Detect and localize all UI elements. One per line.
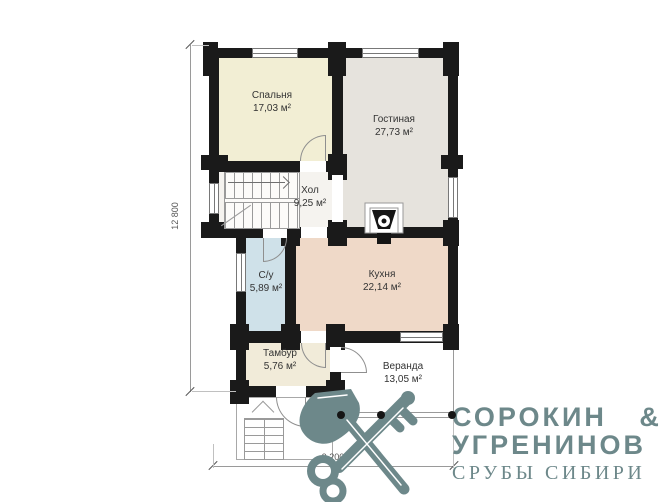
- room-area: 9,25 м²: [280, 198, 340, 211]
- dimension-extension: [213, 444, 214, 468]
- room-area: 17,03 м²: [222, 103, 322, 116]
- window-kitchen-bottom: [400, 332, 443, 342]
- floor-plan-page: 12 800 9 200 Спальня 17,03 м² Гостиная 2…: [0, 0, 667, 502]
- room-name: Тамбур: [230, 348, 330, 361]
- label-vestibule: Тамбур 5,76 м²: [230, 348, 330, 373]
- window-living-right: [448, 177, 458, 218]
- room-area: 5,76 м²: [230, 361, 330, 374]
- opening-kitchen-vestibule: [301, 331, 326, 343]
- veranda-post: [377, 411, 385, 419]
- log-end: [441, 155, 463, 169]
- label-veranda: Веранда 13,05 м²: [353, 361, 453, 386]
- logo-line-2: УГРЕНИНОВ: [452, 432, 651, 459]
- window-hall-left: [209, 183, 219, 214]
- window-bedroom-top: [252, 48, 298, 58]
- opening-vestibule-veranda: [330, 347, 341, 372]
- room-name: Кухня: [332, 269, 432, 282]
- log-end: [443, 42, 459, 76]
- opening-bedroom-door: [300, 161, 326, 172]
- dimension-line-left: [190, 45, 191, 392]
- log-end: [203, 42, 218, 76]
- veranda-post: [448, 411, 456, 419]
- log-end: [328, 42, 346, 76]
- stove-icon: [364, 202, 404, 246]
- log-end: [230, 380, 249, 404]
- room-area: 13,05 м²: [353, 374, 453, 387]
- log-end: [443, 220, 459, 246]
- room-name: Спальня: [222, 90, 322, 103]
- label-bathroom: С/у 5,89 м²: [236, 270, 296, 295]
- log-end: [443, 324, 459, 350]
- label-bedroom: Спальня 17,03 м²: [222, 90, 322, 115]
- opening-hall-kitchen: [301, 227, 327, 238]
- room-area: 22,14 м²: [332, 282, 432, 295]
- staircase-break-line: [221, 205, 251, 226]
- log-end: [201, 155, 228, 170]
- log-end: [230, 324, 249, 350]
- dimension-extension: [192, 391, 236, 392]
- label-hall: Хол 9,25 м²: [280, 185, 340, 210]
- label-kitchen: Кухня 22,14 м²: [332, 269, 432, 294]
- log-end: [328, 220, 347, 246]
- room-name: Гостиная: [344, 114, 444, 127]
- label-living: Гостиная 27,73 м²: [344, 114, 444, 139]
- room-area: 27,73 м²: [344, 127, 444, 140]
- window-living-top: [362, 48, 419, 58]
- veranda-post: [337, 411, 345, 419]
- logo-line-3: СРУБЫ СИБИРИ: [452, 463, 651, 483]
- dimension-left-label: 12 800: [170, 194, 182, 238]
- room-area: 5,89 м²: [236, 283, 296, 296]
- axe-key-icon: [287, 387, 458, 502]
- log-end: [281, 324, 300, 350]
- room-name: С/у: [236, 270, 296, 283]
- logo-line-1: СОРОКИН &: [452, 404, 651, 431]
- dimension-extension: [192, 45, 209, 46]
- entrance-steps: [244, 418, 284, 460]
- room-name: Хол: [280, 185, 340, 198]
- room-name: Веранда: [353, 361, 453, 374]
